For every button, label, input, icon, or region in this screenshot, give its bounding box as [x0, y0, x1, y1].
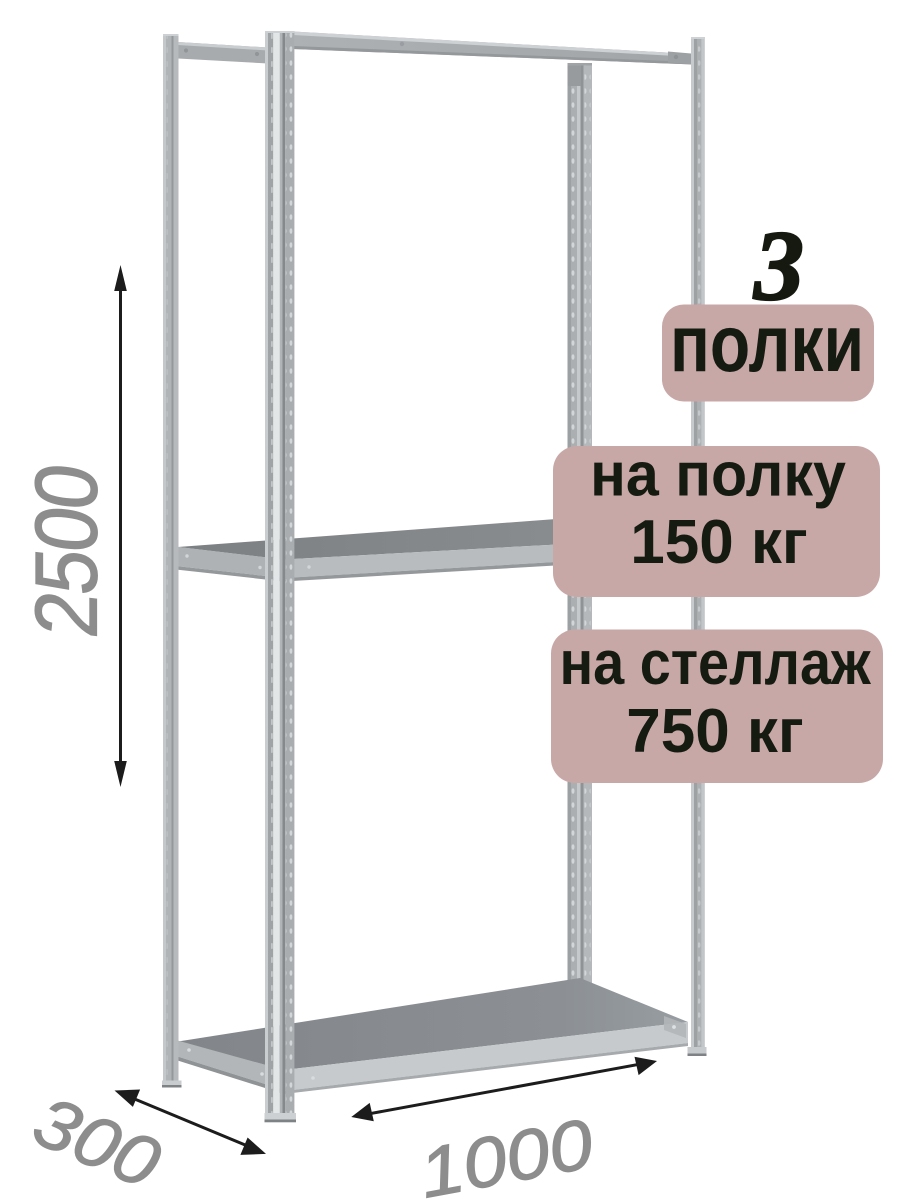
- svg-text:полки: полки: [670, 298, 864, 389]
- svg-text:300: 300: [23, 1080, 172, 1200]
- svg-text:150 кг: 150 кг: [630, 508, 808, 577]
- svg-text:2500: 2500: [17, 461, 115, 642]
- svg-text:1000: 1000: [413, 1104, 599, 1200]
- svg-text:на полку: на полку: [590, 439, 846, 509]
- svg-text:на стеллаж: на стеллаж: [559, 629, 871, 697]
- svg-text:750 кг: 750 кг: [626, 697, 804, 766]
